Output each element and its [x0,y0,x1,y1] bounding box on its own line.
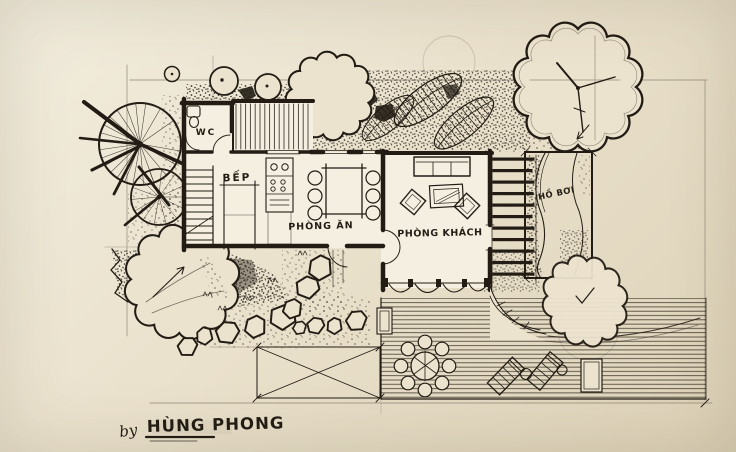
big-tree-top-right [514,23,643,152]
room-label-living: PHÒNG KHÁCH [397,226,482,239]
room-label-wc: WC [196,128,217,138]
signature-prefix: by [118,421,139,441]
driveway [253,343,384,402]
signature-name: HÙNG PHONG [147,413,285,436]
deck-side-table [581,359,602,392]
sketch-page: WC BẾP PHÒNG ĂN PHÒNG KHÁCH HỒ BƠI by HÙ… [0,0,736,452]
room-label-dining: PHÒNG ĂN [288,219,354,233]
deck-planter [377,308,392,334]
signature: by HÙNG PHONG [118,413,285,441]
floor-plan-sketch: WC BẾP PHÒNG ĂN PHÒNG KHÁCH HỒ BƠI by HÙ… [0,0,736,452]
room-label-pool: HỒ BƠI [537,182,576,202]
outdoor-dining-set [394,335,456,397]
small-trees-top [165,67,282,101]
